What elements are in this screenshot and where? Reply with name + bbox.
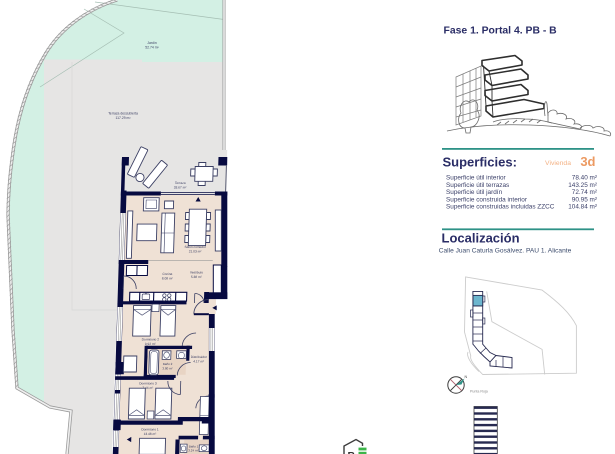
svg-text:Superficie construida interior: Superficie construida interior (446, 196, 528, 203)
svg-text:78.40 m²: 78.40 m² (572, 175, 597, 182)
svg-text:117.29 m²: 117.29 m² (115, 116, 131, 120)
svg-text:13.48 m²: 13.48 m² (144, 432, 157, 436)
svg-text:104.84 m²: 104.84 m² (568, 204, 597, 211)
svg-text:Calle Juan Caturla Gosálvez. P: Calle Juan Caturla Gosálvez. PAU 1. Alic… (439, 247, 572, 254)
svg-text:B: B (348, 450, 356, 454)
svg-text:Superficie construidas incluid: Superficie construidas incluidas ZZCC (446, 204, 555, 211)
svg-text:90.95 m²: 90.95 m² (572, 196, 597, 203)
svg-text:Punta Roja: Punta Roja (470, 390, 488, 394)
svg-text:8.08 m²: 8.08 m² (162, 277, 173, 281)
svg-text:Terraza: Terraza (175, 181, 186, 185)
svg-text:143.25 m²: 143.25 m² (568, 182, 597, 189)
svg-text:Terraza descubierta: Terraza descubierta (108, 112, 138, 116)
svg-text:52.74 m²: 52.74 m² (145, 46, 159, 50)
svg-text:Fase 1. Portal 4. PB - B: Fase 1. Portal 4. PB - B (444, 26, 558, 37)
svg-text:Superficie útil terrazas: Superficie útil terrazas (446, 182, 509, 189)
svg-text:21.03 m²: 21.03 m² (189, 250, 202, 254)
svg-text:4.17 m²: 4.17 m² (193, 360, 204, 364)
svg-text:72.74 m²: 72.74 m² (572, 189, 597, 196)
svg-text:Superficie útil jardín: Superficie útil jardín (446, 189, 503, 196)
svg-text:33.67 m²: 33.67 m² (174, 186, 187, 190)
svg-text:Superficie útil interior: Superficie útil interior (446, 175, 507, 182)
svg-text:Localización: Localización (442, 231, 520, 246)
svg-text:Distribuidor: Distribuidor (191, 355, 208, 359)
svg-text:Dormitorio 1: Dormitorio 1 (141, 428, 159, 432)
svg-text:3.24 m²: 3.24 m² (188, 449, 198, 453)
svg-text:N: N (465, 375, 468, 379)
svg-text:Dormitorio 3: Dormitorio 3 (139, 382, 157, 386)
svg-text:Salón comedor: Salón comedor (184, 245, 206, 249)
svg-text:3.80 m²: 3.80 m² (162, 367, 172, 371)
svg-text:Vivienda: Vivienda (545, 160, 571, 167)
svg-text:Jardín: Jardín (147, 41, 157, 45)
svg-text:Dormitorio 2: Dormitorio 2 (142, 338, 160, 342)
svg-text:Vestíbulo: Vestíbulo (190, 271, 203, 275)
svg-text:9.92 m²: 9.92 m² (145, 342, 156, 346)
svg-text:3d: 3d (580, 154, 595, 169)
svg-text:5.38 m²: 5.38 m² (191, 275, 202, 279)
svg-text:Baño 2: Baño 2 (163, 362, 173, 366)
svg-text:Cocina: Cocina (162, 272, 172, 276)
svg-text:Superficies:: Superficies: (443, 155, 517, 170)
